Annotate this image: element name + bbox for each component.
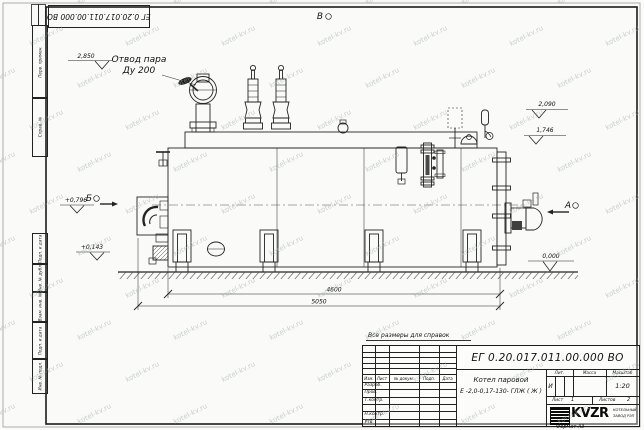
company-logo-icon [550, 407, 570, 425]
steam-valve [177, 74, 216, 132]
svg-text:Б: Б [86, 194, 92, 204]
sheet-value: 1 [571, 397, 574, 403]
title-block: Изм. Лист № докум. Подп. Дата Разраб. Пр… [362, 345, 640, 427]
manhole [207, 242, 225, 256]
titleblock-designation: ЕГ 0.20.017.011.00.000 ВО [456, 346, 639, 369]
stamp-podp-data-2: Подп. и дата [32, 321, 48, 360]
grid-line [592, 396, 593, 404]
burner-box [137, 197, 168, 235]
top-fittings [338, 108, 493, 148]
steam-outlet-label-line1: Отвод пара [112, 55, 167, 65]
water-level-gauges [396, 143, 445, 187]
elevation-1746: 1,746 [524, 127, 566, 144]
stamp-perv-primen: Перв. примен. [32, 25, 48, 99]
view-label-v: В [317, 12, 331, 22]
reference-note: Все размеры для справок [366, 332, 471, 341]
svg-text:А: А [564, 201, 571, 211]
mass-label: Масса [573, 369, 606, 376]
top-designation-text: ЕГ 0.20.017.011.00.000 ВО [47, 12, 150, 21]
lit-label: Лит. [546, 369, 573, 376]
elevation-0000: 0,000 [528, 253, 574, 271]
elevation-0143: +0,143 [76, 244, 110, 260]
company-name-line1: КОТЕЛЬНЫЙ [613, 408, 636, 412]
col-list: Лист [375, 374, 389, 382]
stamp-inv-podl: Инв. № подл. [32, 358, 48, 394]
sheets-label: Листов [599, 398, 615, 403]
row-tkontr: Т.контр. [365, 398, 384, 403]
rear-pump-unit [505, 193, 542, 233]
svg-text:+0,796: +0,796 [65, 197, 87, 204]
stamp-sprav-no: Справ. № [32, 97, 48, 157]
format-label: Формат А3 [556, 424, 584, 430]
svg-text:+0,143: +0,143 [81, 244, 103, 251]
product-type: Е -2,0-0,17-130- ГЛЖ ( Ж ) [456, 386, 546, 397]
col-podp: Подп. [419, 374, 439, 382]
grid-line [363, 357, 456, 358]
grid-line [546, 404, 639, 405]
boiler-top-casing [185, 132, 477, 148]
elevation-2090: 2,090 [526, 101, 568, 118]
safety-valve [244, 65, 291, 129]
company-name-line2: ЗАВОД РЭП [613, 414, 634, 418]
row-nkontr: Н.контр. [365, 412, 385, 417]
product-name: Котел паровой [456, 374, 546, 386]
svg-text:0,000: 0,000 [542, 253, 559, 260]
col-doc: № докум. [389, 374, 419, 382]
lit-value: И [546, 376, 555, 396]
steam-outlet-label-line2: Ду 200 [122, 66, 156, 76]
stamp-podp-data-1: Подп. и дата [32, 233, 48, 265]
sheets-value: 2 [627, 397, 630, 403]
grid-line [363, 352, 456, 353]
grid-line [555, 376, 556, 396]
drawing-sheet: { "watermark": { "text": "kotel-kv.ru" }… [0, 0, 644, 430]
svg-text:5050: 5050 [311, 299, 326, 306]
elevation-2850: 2,850 [68, 53, 112, 69]
boiler-side-view [118, 65, 578, 279]
svg-text:2,090: 2,090 [538, 101, 555, 108]
rear-flange-column [493, 152, 511, 265]
ground-line [118, 272, 578, 279]
col-date: Дата [439, 374, 456, 382]
stamp-vzam-inv: Взам. инв. № [32, 291, 48, 323]
top-designation-box: ЕГ 0.20.017.011.00.000 ВО [48, 5, 150, 28]
scale-value: 1:20 [606, 376, 639, 396]
scale-label: Масштаб [606, 369, 639, 376]
col-izm: Изм. [363, 374, 375, 382]
view-label-b: Б [86, 194, 118, 207]
grid-line [363, 404, 456, 405]
view-label-a: А [547, 201, 578, 215]
company-logo-text: KVZR [571, 406, 609, 421]
row-utv: Утв. [365, 420, 374, 425]
support-legs [173, 230, 481, 272]
svg-text:1,746: 1,746 [536, 127, 553, 134]
grid-line [363, 419, 456, 420]
svg-text:В: В [317, 12, 323, 22]
svg-text:4600: 4600 [326, 287, 341, 294]
row-prov: Пров. [365, 390, 378, 395]
grid-line [564, 376, 565, 396]
svg-text:2,850: 2,850 [77, 53, 94, 60]
stamp-inv-dubl: Инв. № дубл. [32, 263, 48, 293]
grid-line [363, 363, 456, 364]
sheet-label: Лист [552, 398, 563, 403]
grid-line [363, 368, 456, 369]
row-razrab: Разраб. [365, 383, 382, 388]
